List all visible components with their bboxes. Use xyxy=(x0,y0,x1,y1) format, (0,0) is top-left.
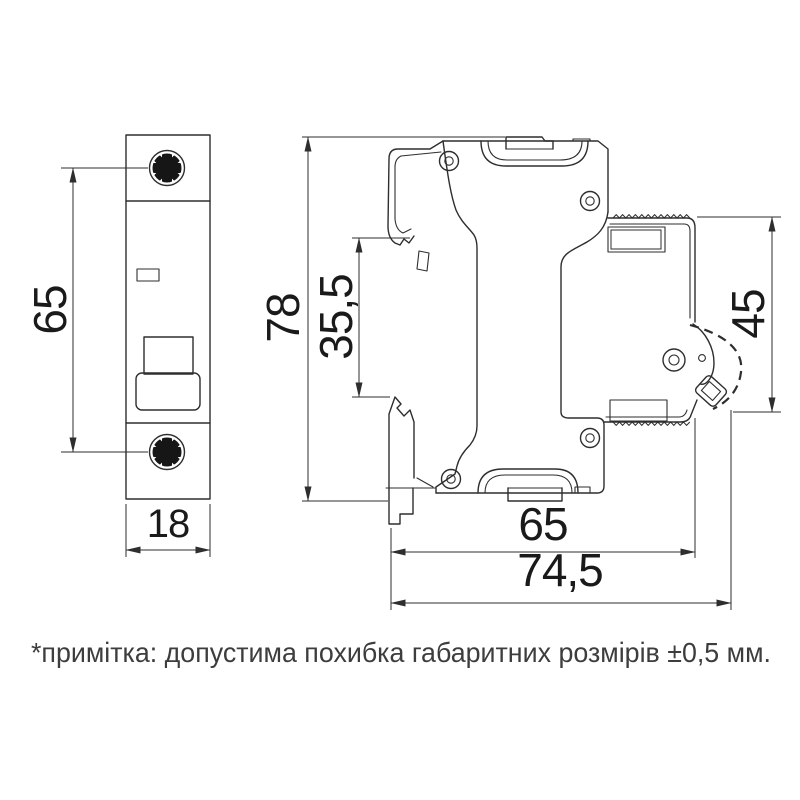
toggle-recess-top-outer xyxy=(481,141,588,166)
side-view xyxy=(386,137,741,524)
drawing-canvas: 65 18 xyxy=(0,0,800,800)
dim-front-width-label: 18 xyxy=(147,502,190,546)
terminal-screw-center xyxy=(669,355,679,365)
dimension-front-width: 18 xyxy=(126,502,210,557)
rivet-icon xyxy=(581,192,600,211)
toggle-recess-top-inner xyxy=(488,141,582,160)
body-right-profile xyxy=(436,212,608,493)
din-clip-foot xyxy=(389,488,413,524)
toggle-lever-handle xyxy=(136,373,200,410)
pozidriv-screw-icon xyxy=(150,151,185,186)
terminal-opening-top-inner xyxy=(611,230,661,249)
rivet-icon xyxy=(440,152,459,171)
dimension-front-height: 65 xyxy=(24,168,148,452)
din-clip-hook xyxy=(389,397,414,488)
din-jaw-inner xyxy=(395,152,441,233)
terminal-shelf-bottom xyxy=(604,400,697,422)
terminal-opening-top xyxy=(608,227,665,252)
dimension-terminal-side: 45 xyxy=(697,217,781,412)
rivet-icon xyxy=(581,429,600,448)
dim-base-width-label: 65 xyxy=(518,498,567,550)
dimension-din-recess: 35,5 xyxy=(310,238,410,397)
terminal-shelf-bottom-inner xyxy=(606,410,687,417)
toggle-tab-top xyxy=(506,137,553,149)
terminal-screw-icon xyxy=(663,349,685,371)
din-jaw-upper xyxy=(388,141,443,245)
toggle-recess-bottom-inner xyxy=(485,475,572,493)
dim-side-height-label: 78 xyxy=(257,293,309,342)
dim-total-depth-label: 74,5 xyxy=(517,544,603,596)
indicator-window xyxy=(137,269,159,281)
din-latch-tab xyxy=(417,251,429,271)
rivet-icon xyxy=(442,470,461,489)
front-view xyxy=(126,135,210,499)
pivot-dot xyxy=(699,355,706,362)
terminal-opening-bottom xyxy=(610,400,667,421)
body-top-edge xyxy=(443,141,608,212)
dim-din-recess-label: 35,5 xyxy=(310,274,362,360)
toggle-lever-stem xyxy=(144,337,193,374)
pocket-lower-edge xyxy=(417,478,433,487)
terminal-shelf-top xyxy=(608,218,695,322)
terminal-shelf-top-inner xyxy=(610,224,690,318)
dim-terminal-side-label: 45 xyxy=(722,289,774,338)
tolerance-note: *примітка: допустима похибка габаритних … xyxy=(31,637,771,668)
body-left-profile xyxy=(436,141,477,493)
toggle-recess-bottom-outer xyxy=(478,469,578,493)
pozidriv-screw-icon xyxy=(150,435,185,470)
dimensional-drawing: 65 18 xyxy=(0,0,800,800)
dim-front-height-label: 65 xyxy=(24,285,76,334)
